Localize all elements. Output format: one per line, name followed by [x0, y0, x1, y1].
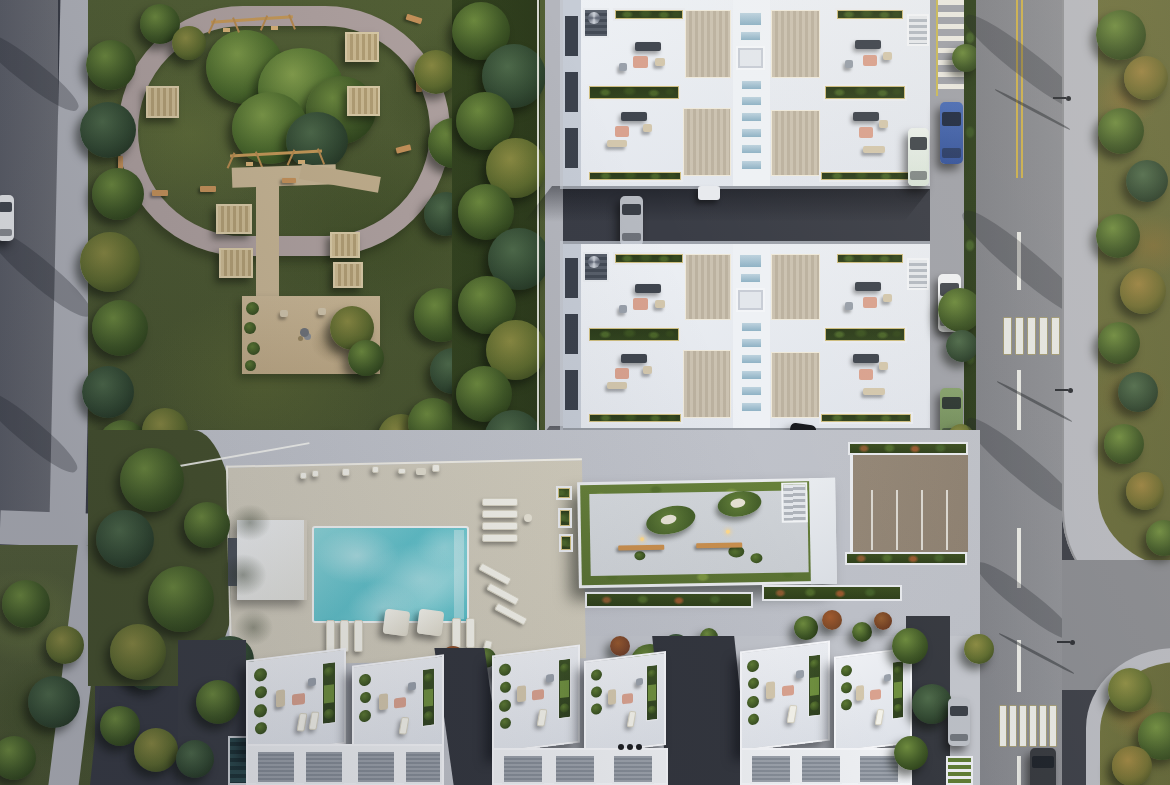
- skylight: [741, 386, 762, 396]
- sun-lounger: [482, 522, 518, 530]
- field-tree: [1096, 214, 1140, 258]
- terrace-rug: [863, 297, 877, 308]
- unit-bush: [359, 673, 371, 686]
- pergola: [146, 86, 179, 118]
- crosswalk-stripe: [1028, 318, 1035, 354]
- balcony-slot: [565, 370, 578, 410]
- terrace-chair: [643, 366, 652, 374]
- swing-seat: [223, 28, 230, 32]
- field-tree: [1126, 160, 1168, 202]
- unit-sofa: [766, 681, 775, 699]
- clubhouse-bench: [618, 545, 664, 551]
- terrace-chair: [879, 362, 888, 370]
- skylight: [741, 370, 762, 380]
- tree: [92, 168, 144, 220]
- ribbed-panel: [502, 754, 544, 784]
- parking-hedge-top: [848, 442, 968, 455]
- unit-bush: [894, 665, 902, 674]
- roof-deck: [683, 350, 731, 418]
- crosswalk-lower: [1000, 706, 1062, 746]
- crosswalk-stripe: [1040, 318, 1047, 354]
- field-tree: [1108, 668, 1152, 712]
- unit-sofa: [276, 689, 285, 707]
- terrace-planter: [823, 84, 907, 101]
- tree: [176, 740, 214, 778]
- balcony-slot: [565, 72, 578, 112]
- unit-bush: [255, 686, 267, 699]
- garage-deck-row: [740, 748, 912, 785]
- silver-car-parked: [948, 698, 970, 746]
- unit-bush: [748, 677, 759, 689]
- unit-chair: [796, 670, 804, 679]
- planter-grass: [648, 684, 656, 701]
- roof-hatch: [736, 46, 765, 70]
- tree: [46, 626, 84, 664]
- terrace-sofa: [621, 112, 647, 121]
- roof-deck: [683, 108, 731, 176]
- deck-tree-shadow: [222, 500, 292, 650]
- ribbed-panel: [800, 754, 842, 784]
- unit-chair: [408, 682, 416, 691]
- lane-dash: [1017, 640, 1021, 692]
- crosswalk-stripe: [1020, 706, 1026, 746]
- unit-chair: [546, 674, 554, 683]
- tree: [964, 634, 994, 664]
- sun-lounger: [466, 618, 475, 648]
- unit-rug: [532, 689, 544, 700]
- poolside-tree: [96, 510, 154, 568]
- pool-chair: [342, 468, 350, 476]
- crosswalk-stripe: [1052, 318, 1059, 354]
- clubhouse-roof-terrace: [589, 490, 808, 576]
- unit-planter: [422, 667, 435, 727]
- crosswalk-stripe: [1030, 706, 1036, 746]
- terrace-planter: [823, 326, 907, 343]
- roof-spine: [733, 0, 770, 186]
- shrub: [794, 616, 818, 640]
- unit-rug: [782, 685, 794, 696]
- townhouse-unit: [492, 645, 580, 754]
- lane-dash: [1017, 370, 1021, 430]
- roof-lamp: [640, 537, 644, 541]
- plaza-tree: [348, 340, 384, 376]
- stairwell: [583, 8, 609, 38]
- parking-line: [896, 490, 898, 550]
- roof-deck: [771, 110, 820, 176]
- terrace-chair: [643, 124, 652, 132]
- sun-lounger: [482, 498, 518, 506]
- field-tree: [1120, 268, 1166, 314]
- bench: [282, 178, 296, 183]
- unit-lounger: [399, 717, 410, 735]
- roof-deck: [771, 352, 820, 418]
- pergola: [219, 248, 253, 278]
- pergola: [345, 32, 379, 62]
- terrace-lounger: [607, 140, 627, 147]
- skylight: [739, 12, 762, 26]
- pool-chair: [300, 472, 307, 479]
- unit-bush: [424, 673, 433, 683]
- clubhouse-stairs: [781, 482, 808, 522]
- unit-bush: [648, 669, 656, 678]
- unit-lounger: [627, 711, 637, 727]
- unit-bush: [254, 704, 267, 719]
- white-car-left-street: [0, 195, 14, 241]
- poolside-tree: [148, 566, 214, 632]
- clubhouse: [577, 478, 837, 588]
- tree: [892, 628, 928, 664]
- unit-sofa: [856, 685, 864, 701]
- lane-dash: [1017, 528, 1021, 588]
- tree: [28, 676, 80, 728]
- stair-east: [907, 14, 929, 46]
- unit-bush: [810, 701, 819, 711]
- townhouse-unit: [352, 654, 444, 757]
- tree: [82, 366, 134, 418]
- unit-planter: [646, 664, 658, 721]
- island-seat: [660, 513, 678, 525]
- flower-shrub: [822, 610, 842, 630]
- unit-planter: [808, 654, 821, 718]
- spiral-stair: [588, 256, 600, 268]
- unit-bush: [500, 681, 511, 693]
- terrace-sofa: [853, 354, 879, 363]
- skylight: [740, 31, 761, 41]
- planter-grass: [894, 681, 902, 698]
- ribbed-panel: [612, 754, 654, 784]
- unit-bush: [324, 708, 334, 719]
- tree: [100, 706, 140, 746]
- townhouse-unit: [740, 640, 830, 751]
- unit-bush: [747, 659, 759, 672]
- swing-beam: [211, 15, 293, 24]
- bench: [200, 186, 216, 192]
- apartment-block-a: [563, 0, 932, 186]
- skylight: [741, 402, 762, 412]
- garage-deck-row: [246, 744, 444, 785]
- edge-planter: [819, 412, 913, 424]
- terrace-pouf: [619, 305, 627, 313]
- planter-grass: [560, 680, 569, 698]
- unit-bush: [424, 711, 433, 721]
- spiral-stair: [588, 12, 600, 24]
- apartment-block-b: [563, 244, 932, 428]
- parking-hedge-bottom: [845, 552, 967, 565]
- skylight: [741, 112, 762, 122]
- block-a-shadow: [524, 186, 932, 222]
- terrace-rug: [615, 126, 629, 137]
- white-roofbox: [698, 186, 720, 200]
- stairwell: [583, 252, 609, 282]
- unit-bush: [810, 659, 819, 669]
- side-table: [524, 514, 532, 522]
- dark-car-driving: [1030, 748, 1056, 785]
- tree: [80, 102, 136, 158]
- roof-planter: [613, 252, 685, 265]
- unit-planter: [322, 661, 336, 725]
- unit-chair: [636, 678, 643, 686]
- pool-chair: [432, 464, 440, 472]
- crosswalk-stripe: [1000, 706, 1006, 746]
- skylight: [739, 254, 762, 268]
- planter-grass: [324, 684, 334, 703]
- planter-strip: [585, 592, 753, 608]
- unit-bush: [841, 665, 852, 677]
- park-fence: [537, 0, 539, 470]
- swing-beam: [230, 150, 322, 158]
- unit-rug: [870, 689, 881, 700]
- field-tree: [1126, 472, 1164, 510]
- plaza-chair: [318, 308, 326, 315]
- ribbed-panel: [356, 750, 396, 784]
- terrace-lounger: [863, 388, 885, 395]
- terrace-chair: [655, 58, 665, 66]
- unit-bush: [894, 703, 902, 712]
- pool-chair: [312, 470, 319, 477]
- yellow-centerline: [1021, 0, 1023, 178]
- planter-strip: [762, 585, 902, 601]
- crosswalk-upper: [1004, 318, 1062, 354]
- roof-lamp: [726, 530, 730, 534]
- terrace-chair: [879, 120, 888, 128]
- townhouse-unit: [834, 647, 912, 753]
- unit-lounger: [296, 713, 307, 732]
- tree: [894, 736, 928, 770]
- plaza-bush: [244, 322, 256, 334]
- firepit: [300, 328, 309, 337]
- terrace-rug: [615, 368, 629, 379]
- swing-set-top: [205, 10, 301, 44]
- plaza-chair: [280, 310, 288, 317]
- terrace-sofa: [855, 40, 881, 49]
- unit-bush: [255, 722, 267, 735]
- gray-car-courtyard: [620, 196, 643, 246]
- edge-planter: [587, 170, 683, 182]
- street-lamp: [1068, 388, 1073, 393]
- terrace-rug: [859, 369, 873, 380]
- island-seat: [730, 498, 746, 509]
- skylight: [741, 338, 762, 348]
- plaza-bush: [247, 342, 260, 355]
- ribbed-panel: [304, 750, 344, 784]
- roof-spine: [733, 244, 770, 428]
- ribbed-panel: [256, 750, 296, 784]
- unit-bush: [499, 663, 511, 676]
- terrace-sofa: [855, 282, 881, 291]
- terrace-sofa: [635, 284, 661, 293]
- unit-bush: [499, 699, 511, 712]
- crosswalk-stripe: [1004, 318, 1011, 354]
- blue-car: [940, 102, 963, 164]
- unit-rug: [622, 693, 633, 704]
- balcony-slot: [565, 314, 578, 354]
- bench: [152, 190, 168, 196]
- swing-leg: [208, 18, 216, 33]
- townhouse-unit: [584, 651, 666, 755]
- parking-line: [871, 490, 873, 550]
- tree: [80, 232, 140, 292]
- sun-lounger: [482, 510, 518, 518]
- crosswalk-stripe: [1040, 706, 1046, 746]
- garage-deck-row: [492, 748, 668, 785]
- plaza-bush: [246, 302, 259, 315]
- terrace-pouf: [619, 63, 627, 71]
- townhouse-unit: [246, 648, 346, 756]
- terrace-lounger: [607, 382, 627, 389]
- flower-shrub: [610, 636, 630, 656]
- stair-east: [907, 258, 929, 290]
- unit-sofa: [608, 689, 616, 705]
- balcony-slot: [565, 128, 578, 168]
- unit-bush: [359, 709, 371, 722]
- unit-planter: [558, 658, 571, 720]
- poolside-tree: [110, 624, 166, 680]
- unit-bush: [591, 686, 602, 698]
- field-tree: [1098, 322, 1140, 364]
- skylight: [741, 354, 762, 364]
- street-lamp: [1066, 96, 1071, 101]
- parking-line: [921, 490, 923, 550]
- balcony-slot: [565, 258, 578, 298]
- terrace-rug: [863, 55, 877, 66]
- roof-deck: [771, 254, 820, 320]
- skylight: [741, 96, 762, 106]
- terrace-chair: [883, 294, 892, 302]
- planter: [556, 486, 572, 500]
- pergola: [347, 86, 380, 116]
- planter: [558, 508, 572, 528]
- unit-bush: [560, 703, 569, 713]
- unit-bush: [591, 669, 602, 681]
- crosswalk-stripe: [1016, 318, 1023, 354]
- terrace-chair: [883, 52, 892, 60]
- shrub: [852, 622, 872, 642]
- field-tree: [1104, 424, 1144, 464]
- bike-rack: [946, 756, 973, 785]
- pergola: [330, 232, 360, 258]
- skylight: [740, 273, 761, 283]
- parking-lot: [850, 452, 968, 552]
- terrace-pouf: [845, 302, 853, 310]
- unit-rug: [292, 693, 305, 706]
- tree: [134, 728, 178, 772]
- lane-dash: [1017, 756, 1021, 785]
- planter-grass: [810, 677, 819, 696]
- unit-bush: [560, 663, 569, 673]
- field-tree: [1118, 372, 1158, 412]
- terrace-planter: [587, 84, 681, 101]
- field-tree: [1098, 108, 1144, 154]
- unit-chair: [884, 674, 891, 682]
- terrace-planter: [587, 326, 681, 343]
- edge-planter: [587, 412, 683, 424]
- roof-deck: [685, 254, 731, 320]
- unit-rug: [394, 697, 406, 708]
- unit-bush: [324, 666, 334, 677]
- tree: [912, 684, 952, 724]
- edge-planter: [819, 170, 913, 182]
- terrace-sofa: [621, 354, 647, 363]
- ribbed-panel: [858, 754, 900, 784]
- unit-sofa: [379, 693, 388, 710]
- flower-shrub: [874, 612, 892, 630]
- unit-lounger: [308, 712, 319, 731]
- unit-bush: [648, 705, 656, 714]
- roof-hatch: [736, 288, 765, 312]
- poolside-tree: [120, 448, 184, 512]
- unit-bush: [591, 703, 602, 715]
- street-lamp: [1070, 640, 1075, 645]
- sun-lounger: [452, 618, 461, 648]
- unit-bush: [841, 699, 852, 711]
- tree: [92, 300, 148, 356]
- planter-grass: [424, 689, 433, 707]
- left-sidewalk-corner: [0, 510, 95, 547]
- roof-deck: [685, 10, 731, 78]
- skylight: [741, 80, 762, 90]
- unit-bush: [748, 713, 759, 725]
- sun-lounger: [482, 534, 518, 542]
- unit-planter: [892, 660, 904, 719]
- swing-seat: [271, 26, 278, 30]
- roof-planter: [613, 8, 685, 21]
- roof-planter: [835, 252, 905, 265]
- tree: [196, 680, 240, 724]
- unit-lounger: [537, 709, 548, 727]
- skylight: [741, 128, 762, 138]
- skylight: [741, 144, 762, 154]
- pool-table: [416, 468, 426, 475]
- roof-planter: [835, 8, 905, 21]
- pool-chair: [372, 466, 379, 473]
- tree: [2, 580, 50, 628]
- field-tree: [1096, 10, 1146, 60]
- pergola: [333, 262, 363, 288]
- building-sidewalk-west: [545, 0, 563, 478]
- ribbed-panel: [554, 754, 596, 784]
- unit-bush: [360, 691, 371, 703]
- unit-bush: [254, 668, 267, 683]
- white-mint-van: [908, 128, 929, 186]
- pergola: [216, 204, 252, 234]
- unit-bush: [747, 695, 759, 708]
- terrace-sofa: [635, 42, 661, 51]
- sun-lounger: [326, 620, 335, 652]
- roof-deck: [771, 10, 820, 78]
- umbrella: [417, 609, 445, 637]
- terrace-chair: [655, 300, 665, 308]
- planter: [559, 534, 573, 552]
- plaza-bush: [245, 360, 256, 371]
- clubhouse-east-wing: [809, 478, 837, 584]
- swing-seat: [246, 162, 253, 166]
- terrace-sofa: [853, 112, 879, 121]
- ribbed-panel: [750, 754, 792, 784]
- clubhouse-bench: [696, 542, 742, 548]
- terrace-rug: [633, 298, 648, 310]
- unit-lounger: [875, 709, 885, 725]
- terrace-lounger: [863, 146, 885, 153]
- field-tree: [1112, 746, 1152, 785]
- unit-chair: [308, 678, 316, 687]
- skylight: [741, 322, 762, 332]
- ribbed-panel: [404, 750, 442, 784]
- crosswalk-stripe: [1010, 706, 1016, 746]
- terrace-pouf: [845, 60, 853, 68]
- field-tree: [1124, 56, 1168, 100]
- terrace-rug: [859, 127, 873, 138]
- aerial-site-render: [0, 0, 1170, 785]
